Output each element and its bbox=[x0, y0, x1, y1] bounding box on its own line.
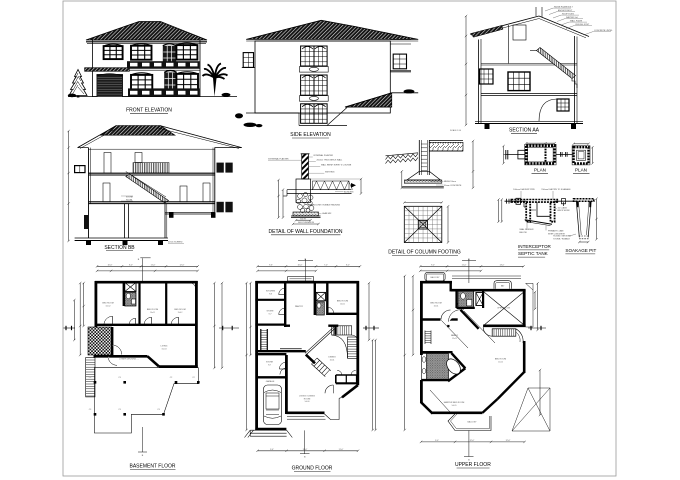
svg-text:RIDGE PLATE BOLT: RIDGE PLATE BOLT bbox=[554, 5, 573, 8]
svg-text:10x11: 10x11 bbox=[330, 359, 335, 361]
svg-text:SEAL RENDER: SEAL RENDER bbox=[519, 228, 534, 231]
svg-text:LIVING / DINING: LIVING / DINING bbox=[299, 396, 315, 398]
svg-text:ANCHOR BOLT: ANCHOR BOLT bbox=[558, 9, 573, 12]
svg-text:11'-0": 11'-0" bbox=[151, 264, 156, 266]
svg-text:BED ROOM: BED ROOM bbox=[495, 359, 507, 361]
svg-text:ROUND / BROKEN: ROUND / BROKEN bbox=[553, 236, 571, 238]
svg-text:12x12: 12x12 bbox=[452, 338, 457, 340]
svg-text:BED ROOM: BED ROOM bbox=[430, 303, 442, 305]
svg-text:BLINDING: BLINDING bbox=[344, 191, 354, 193]
svg-text:STONE / RUBBLE: STONE / RUBBLE bbox=[553, 238, 570, 240]
svg-text:200mm THICK BRICK WALL: 200mm THICK BRICK WALL bbox=[317, 159, 344, 162]
svg-text:SOAKAGE PIT: SOAKAGE PIT bbox=[565, 248, 596, 253]
svg-text:11x12: 11x12 bbox=[498, 361, 503, 363]
svg-text:150mm DIA PIPE TO SOAKAGE: 150mm DIA PIPE TO SOAKAGE bbox=[541, 188, 571, 191]
svg-text:9'-6": 9'-6" bbox=[269, 264, 273, 266]
svg-text:9x7: 9x7 bbox=[269, 313, 272, 315]
svg-text:SIDE ELEVATION: SIDE ELEVATION bbox=[290, 132, 331, 138]
svg-text:10'-0": 10'-0" bbox=[298, 264, 303, 266]
svg-text:WALL REINF. EVERY 3 COURSE: WALL REINF. EVERY 3 COURSE bbox=[321, 164, 352, 167]
svg-text:UPPER FLOOR: UPPER FLOOR bbox=[455, 462, 491, 468]
svg-text:10x11: 10x11 bbox=[434, 305, 439, 307]
svg-text:MASTER BED ROOM: MASTER BED ROOM bbox=[444, 401, 465, 404]
svg-text:SCALE 1:50: SCALE 1:50 bbox=[450, 129, 462, 132]
svg-text:10x11: 10x11 bbox=[150, 312, 155, 314]
svg-text:GARAGE: GARAGE bbox=[266, 380, 275, 383]
svg-text:DINING: DINING bbox=[328, 357, 336, 359]
svg-text:BED ROOM: BED ROOM bbox=[147, 309, 159, 311]
svg-text:LEAN MIX: LEAN MIX bbox=[322, 212, 332, 215]
svg-text:WALL PLATE: WALL PLATE bbox=[570, 19, 583, 22]
svg-text:12'-0": 12'-0" bbox=[470, 440, 475, 442]
svg-text:BRICK WORK: BRICK WORK bbox=[558, 210, 571, 212]
svg-text:7'-0": 7'-0" bbox=[324, 264, 328, 266]
svg-text:INTERNAL PLASTER: INTERNAL PLASTER bbox=[314, 154, 334, 157]
svg-text:BASEMENT FLOOR: BASEMENT FLOOR bbox=[129, 464, 175, 470]
svg-text:BELOW: BELOW bbox=[519, 232, 526, 234]
svg-text:DETAIL OF WALL FOUNDATION: DETAIL OF WALL FOUNDATION bbox=[269, 229, 343, 235]
svg-text:12'-0": 12'-0" bbox=[303, 449, 308, 451]
svg-text:13'-0": 13'-0" bbox=[500, 264, 505, 266]
svg-text:KITCHEN: KITCHEN bbox=[266, 291, 276, 293]
svg-text:50mm CONCRETE: 50mm CONCRETE bbox=[444, 185, 462, 187]
svg-text:MESH 12mm: MESH 12mm bbox=[444, 181, 456, 183]
svg-text:9'-0": 9'-0" bbox=[431, 264, 435, 266]
svg-text:SEPTIC TANK: SEPTIC TANK bbox=[518, 251, 549, 256]
svg-text:STORE: STORE bbox=[126, 197, 134, 199]
svg-text:PLAN: PLAN bbox=[534, 168, 546, 173]
svg-text:1st CLASS: 1st CLASS bbox=[558, 206, 568, 209]
svg-text:11'-0": 11'-0" bbox=[339, 449, 344, 451]
svg-text:15x13: 15x13 bbox=[162, 348, 167, 350]
svg-text:STORE: STORE bbox=[266, 311, 274, 313]
svg-text:PANTRY: PANTRY bbox=[295, 305, 304, 308]
svg-text:10x12: 10x12 bbox=[106, 305, 111, 307]
svg-text:FRONT ELEVATION: FRONT ELEVATION bbox=[126, 108, 172, 114]
svg-text:BALCONY: BALCONY bbox=[467, 421, 477, 424]
svg-text:8'-0": 8'-0" bbox=[129, 264, 133, 266]
svg-text:8'-0": 8'-0" bbox=[346, 264, 350, 266]
svg-text:100mm DIA VENT PIPE: 100mm DIA VENT PIPE bbox=[513, 188, 535, 191]
svg-text:LOWER DECKING ....: LOWER DECKING .... bbox=[119, 359, 139, 361]
svg-text:STORE: STORE bbox=[266, 362, 274, 364]
svg-text:14x16: 14x16 bbox=[305, 401, 310, 403]
svg-text:BED ROOM: BED ROOM bbox=[174, 309, 186, 311]
svg-text:9'-6": 9'-6" bbox=[270, 449, 274, 451]
svg-text:DETAIL OF COLUMN FOOTING: DETAIL OF COLUMN FOOTING bbox=[388, 250, 461, 256]
svg-text:INTERCEPTOR: INTERCEPTOR bbox=[518, 244, 552, 249]
svg-text:RAFTER 2x6: RAFTER 2x6 bbox=[566, 16, 579, 19]
svg-text:BALCONY: BALCONY bbox=[430, 276, 440, 279]
svg-text:SECTION BB: SECTION BB bbox=[104, 245, 135, 251]
svg-text:LIVING: LIVING bbox=[161, 346, 168, 348]
svg-text:PLAN: PLAN bbox=[575, 168, 587, 173]
svg-text:12'-6": 12'-6" bbox=[506, 440, 511, 442]
svg-text:GROUND FLOOR: GROUND FLOOR bbox=[292, 465, 333, 471]
svg-text:900 FOUNDATION: 900 FOUNDATION bbox=[298, 221, 315, 224]
svg-text:HARDCORE / RUBBLE PACKING: HARDCORE / RUBBLE PACKING bbox=[310, 204, 341, 207]
svg-text:9x8: 9x8 bbox=[269, 293, 272, 295]
svg-text:SECTION AA: SECTION AA bbox=[509, 128, 540, 134]
svg-text:600 W: 600 W bbox=[300, 218, 306, 220]
svg-text:14x15: 14x15 bbox=[452, 405, 457, 407]
svg-text:11x12: 11x12 bbox=[178, 312, 183, 314]
svg-text:BED ROOM: BED ROOM bbox=[102, 303, 114, 305]
svg-text:SKIRTING: SKIRTING bbox=[325, 171, 335, 173]
svg-text:BED ROOM: BED ROOM bbox=[337, 301, 349, 303]
svg-text:9x7: 9x7 bbox=[268, 364, 271, 366]
svg-text:12'-6": 12'-6" bbox=[180, 264, 185, 266]
svg-text:OPEN BELOW: OPEN BELOW bbox=[497, 308, 510, 310]
svg-text:11'-0": 11'-0" bbox=[462, 264, 467, 266]
svg-text:10x11: 10x11 bbox=[340, 303, 345, 305]
svg-text:9'-0": 9'-0" bbox=[435, 440, 439, 442]
svg-text:PRIMARY LOAM: PRIMARY LOAM bbox=[548, 230, 564, 233]
svg-text:ROOM: ROOM bbox=[304, 398, 311, 400]
svg-text:10'-6": 10'-6" bbox=[108, 264, 113, 266]
